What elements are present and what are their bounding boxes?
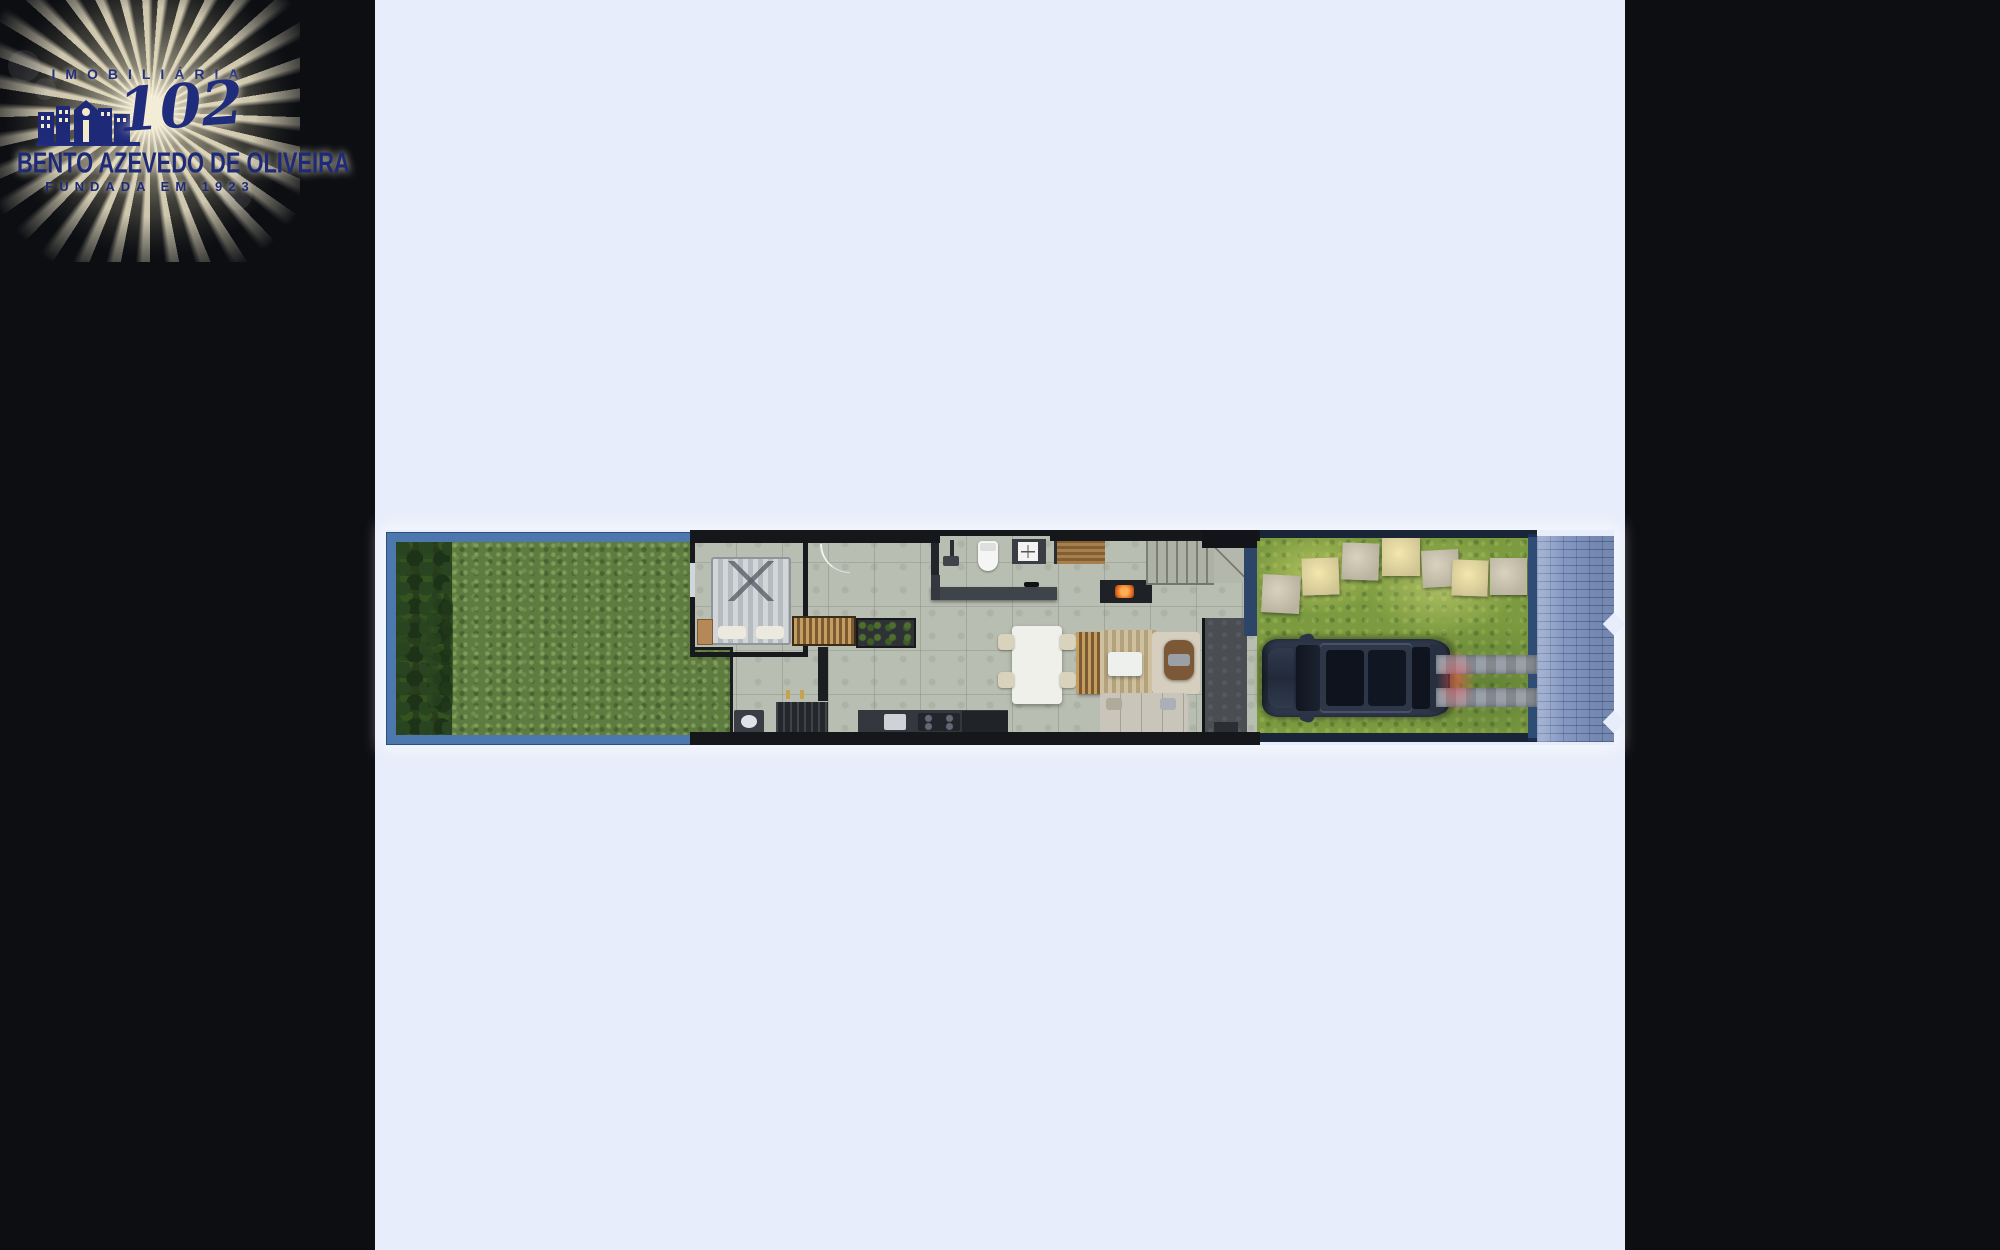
kitchen-sink	[884, 714, 906, 730]
wood-deck	[1054, 539, 1105, 564]
fire-glow	[1115, 585, 1134, 598]
stepping-stone	[1490, 558, 1527, 595]
dining-chair	[1060, 672, 1076, 688]
house-wall-bottom	[690, 732, 1260, 745]
pillow	[756, 626, 784, 639]
cooktop	[918, 713, 960, 731]
washbasin	[1012, 539, 1046, 564]
backyard-garden	[386, 532, 694, 745]
front-fence	[1528, 534, 1537, 741]
courtyard-grass	[690, 647, 733, 738]
car-hood	[1268, 648, 1294, 708]
pillow	[718, 626, 746, 639]
yard-frame-bottom	[1252, 733, 1537, 742]
fireplace	[1100, 580, 1152, 603]
kitchen-counter	[858, 710, 1008, 734]
stepping-stone	[1382, 538, 1420, 576]
wall-faucet	[1024, 582, 1039, 587]
toilet	[978, 541, 998, 571]
nightstand	[697, 619, 713, 645]
planter	[856, 618, 916, 648]
house-wall-top	[940, 530, 1050, 536]
dining-chair	[1060, 634, 1076, 650]
car-sunroof	[1368, 650, 1406, 706]
logo-agency-name: BENTO AZEVEDO DE OLIVEIRA	[17, 146, 283, 180]
sidewalk	[1537, 536, 1614, 742]
faucet-gold	[800, 690, 804, 699]
shower-icon	[950, 540, 954, 566]
entry-path	[1202, 618, 1247, 736]
stepping-stone	[1261, 574, 1301, 614]
laundry-wall	[818, 647, 828, 701]
wardrobe	[792, 616, 856, 646]
stepping-stone	[1341, 542, 1379, 580]
car-sunroof	[1326, 650, 1364, 706]
bed-throw	[715, 561, 787, 601]
sofa	[1100, 693, 1188, 734]
car-windshield	[1296, 645, 1320, 711]
real-estate-image: IMOBILIÁRIA 102 BENTO AZE	[0, 0, 2000, 1250]
car	[1260, 634, 1454, 722]
house-wall-top	[1202, 530, 1257, 548]
kitchen-island	[962, 711, 1008, 733]
stepping-stone	[1301, 557, 1339, 595]
faucet-gold	[786, 690, 790, 699]
bed	[711, 557, 791, 645]
half-wall	[931, 587, 1057, 600]
armchair	[1164, 640, 1194, 680]
agency-logo: IMOBILIÁRIA 102 BENTO AZE	[0, 0, 300, 262]
hedge-inner	[427, 593, 453, 713]
bedroom	[690, 538, 808, 657]
dining-chair	[998, 634, 1014, 650]
coffee-table	[1108, 652, 1142, 676]
yard-frame-top	[1252, 530, 1537, 538]
logo-number: 102	[116, 68, 246, 147]
floor-plan	[386, 530, 1614, 745]
stepping-stone	[1451, 559, 1488, 596]
laundry-sink	[734, 710, 764, 734]
half-wall-stub	[931, 575, 940, 600]
bedroom-window	[690, 563, 695, 597]
car-rear-window	[1412, 647, 1430, 709]
dining-table	[1012, 626, 1062, 704]
house-wall-top	[690, 530, 940, 543]
logo-founded-text: FUNDADA EM 1923	[10, 179, 290, 194]
taillight-glow	[1436, 648, 1476, 714]
dining-chair	[998, 672, 1014, 688]
